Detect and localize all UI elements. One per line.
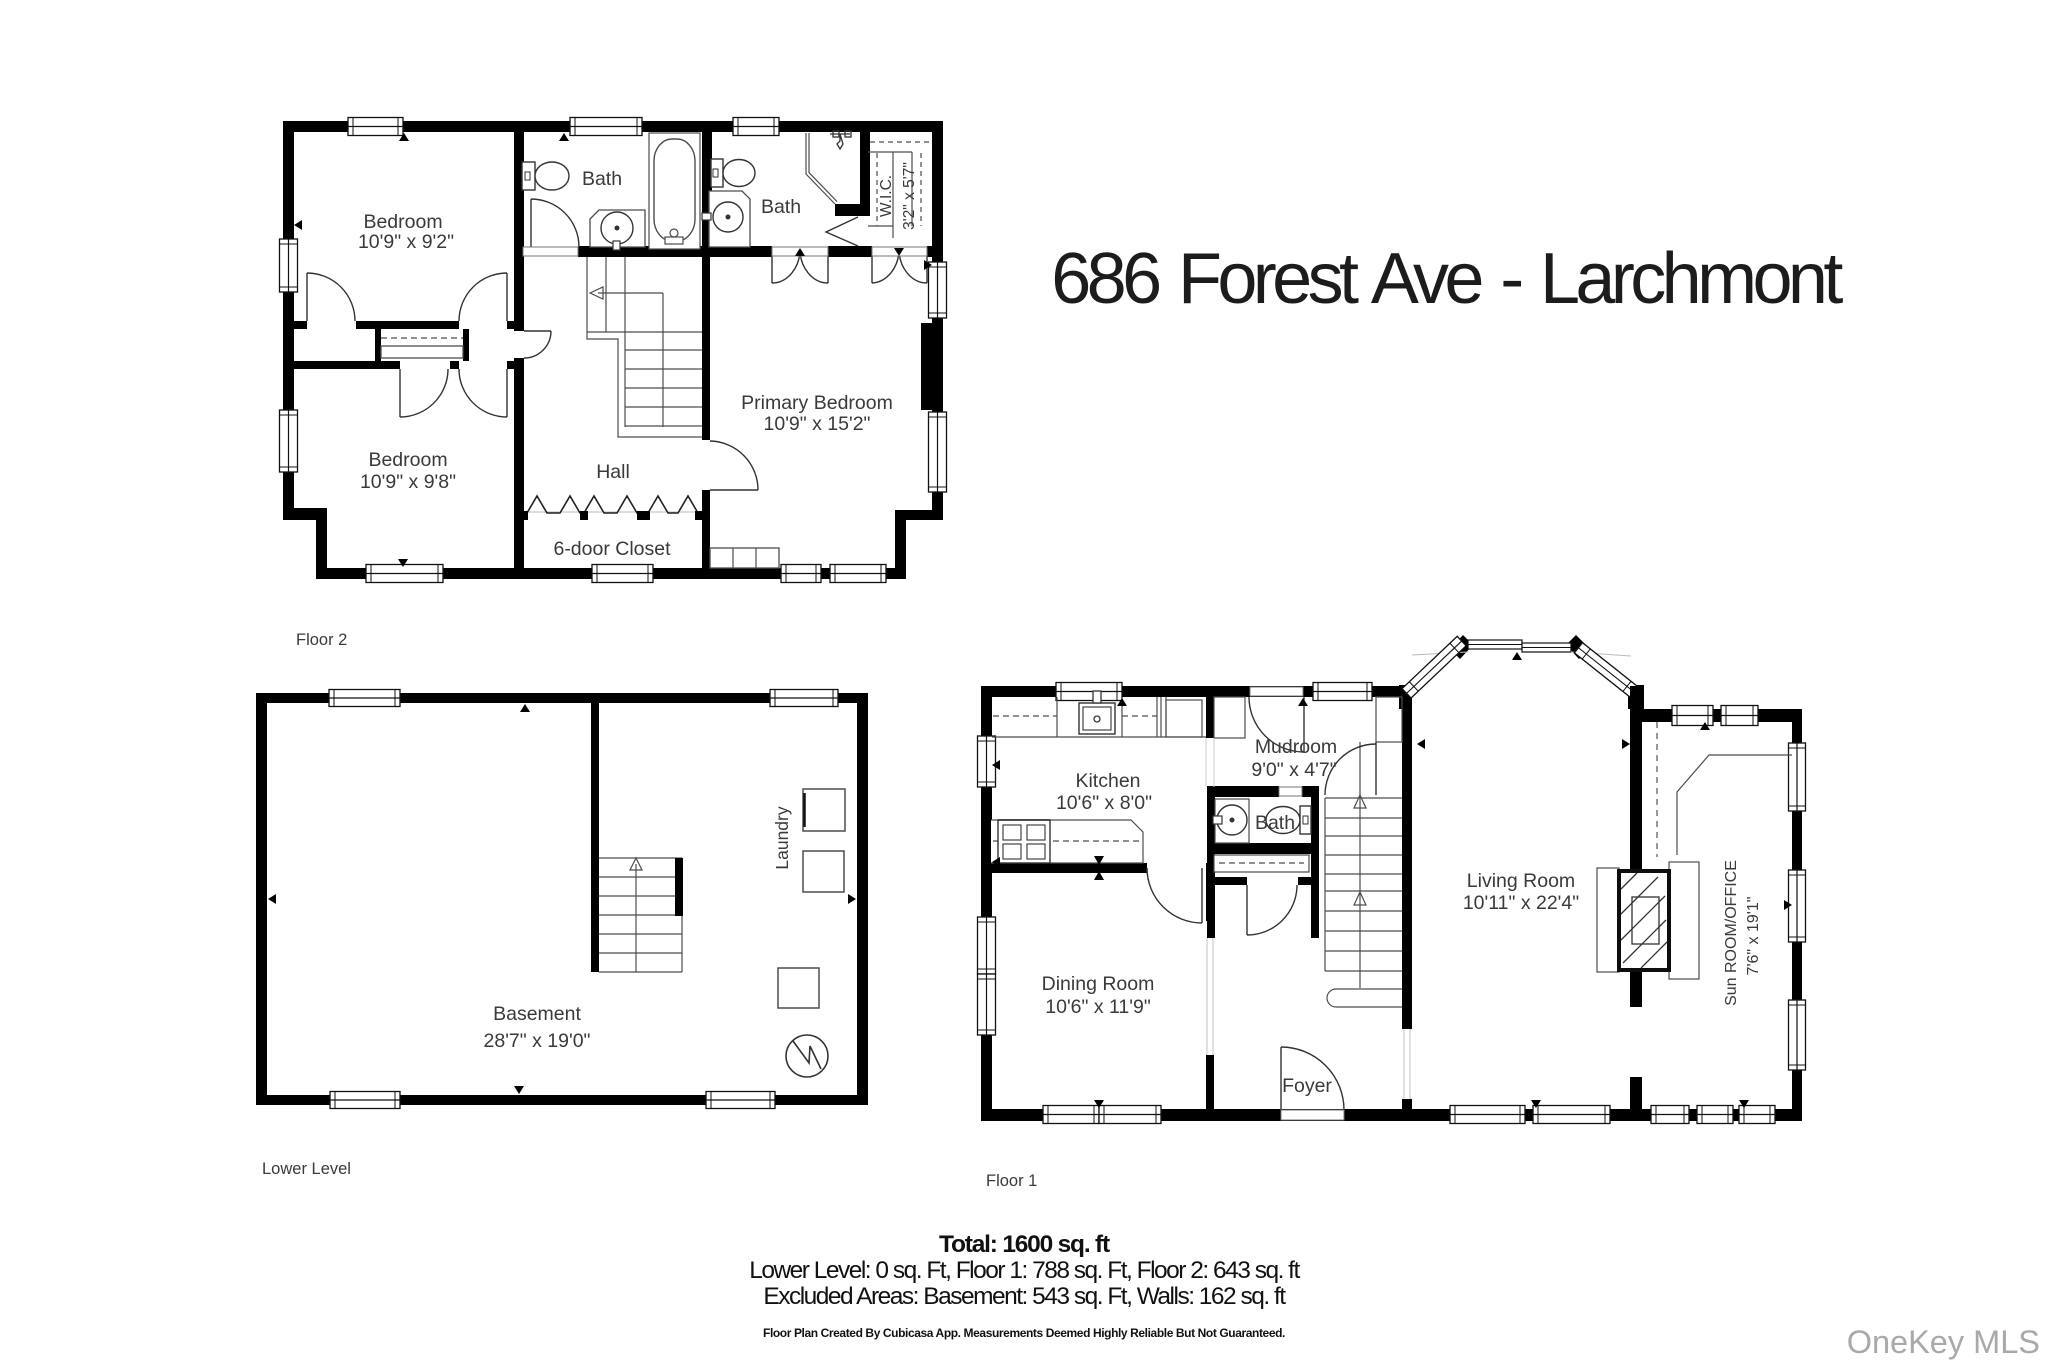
svg-text:Mudroom: Mudroom <box>1255 736 1337 758</box>
svg-text:W.I.C.: W.I.C. <box>878 175 895 217</box>
svg-text:3'2" x 5'7": 3'2" x 5'7" <box>901 162 918 230</box>
svg-text:10'6" x 8'0": 10'6" x 8'0" <box>1056 792 1152 814</box>
svg-text:6-door Closet: 6-door Closet <box>553 538 671 560</box>
svg-text:Total: 1600 sq. ft: Total: 1600 sq. ft <box>939 1231 1110 1258</box>
svg-text:Floor 1: Floor 1 <box>986 1172 1037 1190</box>
svg-text:10'11" x 22'4": 10'11" x 22'4" <box>1463 892 1579 914</box>
svg-text:Foyer: Foyer <box>1282 1075 1332 1097</box>
svg-text:Lower Level: 0 sq. Ft, Floor 1: Lower Level: 0 sq. Ft, Floor 1: 788 sq. … <box>749 1257 1300 1284</box>
svg-text:Bedroom: Bedroom <box>368 449 447 471</box>
svg-text:Kitchen: Kitchen <box>1075 770 1140 792</box>
svg-text:Excluded Areas: Basement: 543: Excluded Areas: Basement: 543 sq. Ft, Wa… <box>763 1283 1286 1310</box>
svg-text:Floor 2: Floor 2 <box>296 631 347 649</box>
svg-text:10'9" x 9'8": 10'9" x 9'8" <box>360 471 456 493</box>
svg-text:Sun ROOM/OFFICE: Sun ROOM/OFFICE <box>1723 860 1740 1006</box>
svg-text:686 Forest Ave - Larchmont: 686 Forest Ave - Larchmont <box>1051 239 1843 319</box>
svg-text:Lower Level: Lower Level <box>262 1160 351 1178</box>
svg-text:10'9" x 15'2": 10'9" x 15'2" <box>764 413 871 435</box>
svg-text:Bath: Bath <box>582 168 622 190</box>
svg-text:10'6" x 11'9": 10'6" x 11'9" <box>1045 996 1151 1018</box>
svg-text:Hall: Hall <box>596 461 630 483</box>
svg-text:Floor Plan Created By Cubicasa: Floor Plan Created By Cubicasa App. Meas… <box>763 1326 1285 1340</box>
svg-text:Bedroom: Bedroom <box>363 211 442 233</box>
svg-text:Bath: Bath <box>1255 812 1295 834</box>
svg-text:Living Room: Living Room <box>1467 870 1575 892</box>
svg-text:OneKey MLS: OneKey MLS <box>1847 1324 2040 1360</box>
svg-text:Laundry: Laundry <box>772 806 792 869</box>
svg-text:Bath: Bath <box>761 196 801 218</box>
svg-text:10'9" x 9'2": 10'9" x 9'2" <box>358 231 454 253</box>
svg-text:9'0" x 4'7": 9'0" x 4'7" <box>1251 759 1336 781</box>
svg-text:Basement: Basement <box>493 1003 581 1025</box>
svg-text:Primary Bedroom: Primary Bedroom <box>741 392 893 414</box>
svg-text:7'6" x 19'1": 7'6" x 19'1" <box>1745 897 1762 976</box>
svg-text:Dining Room: Dining Room <box>1042 973 1155 995</box>
svg-text:28'7" x 19'0": 28'7" x 19'0" <box>484 1030 591 1052</box>
